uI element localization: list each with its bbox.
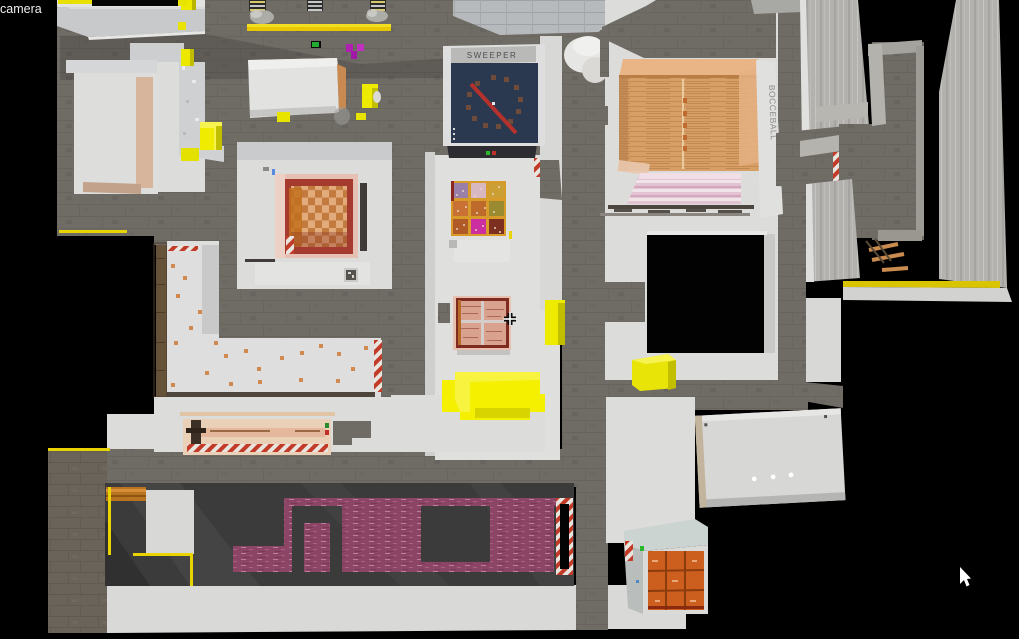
svg-text:camera: camera [0,2,42,16]
svg-text:BOCCEBALL: BOCCEBALL [767,85,779,141]
svg-text:SWEEPER: SWEEPER [467,51,518,60]
